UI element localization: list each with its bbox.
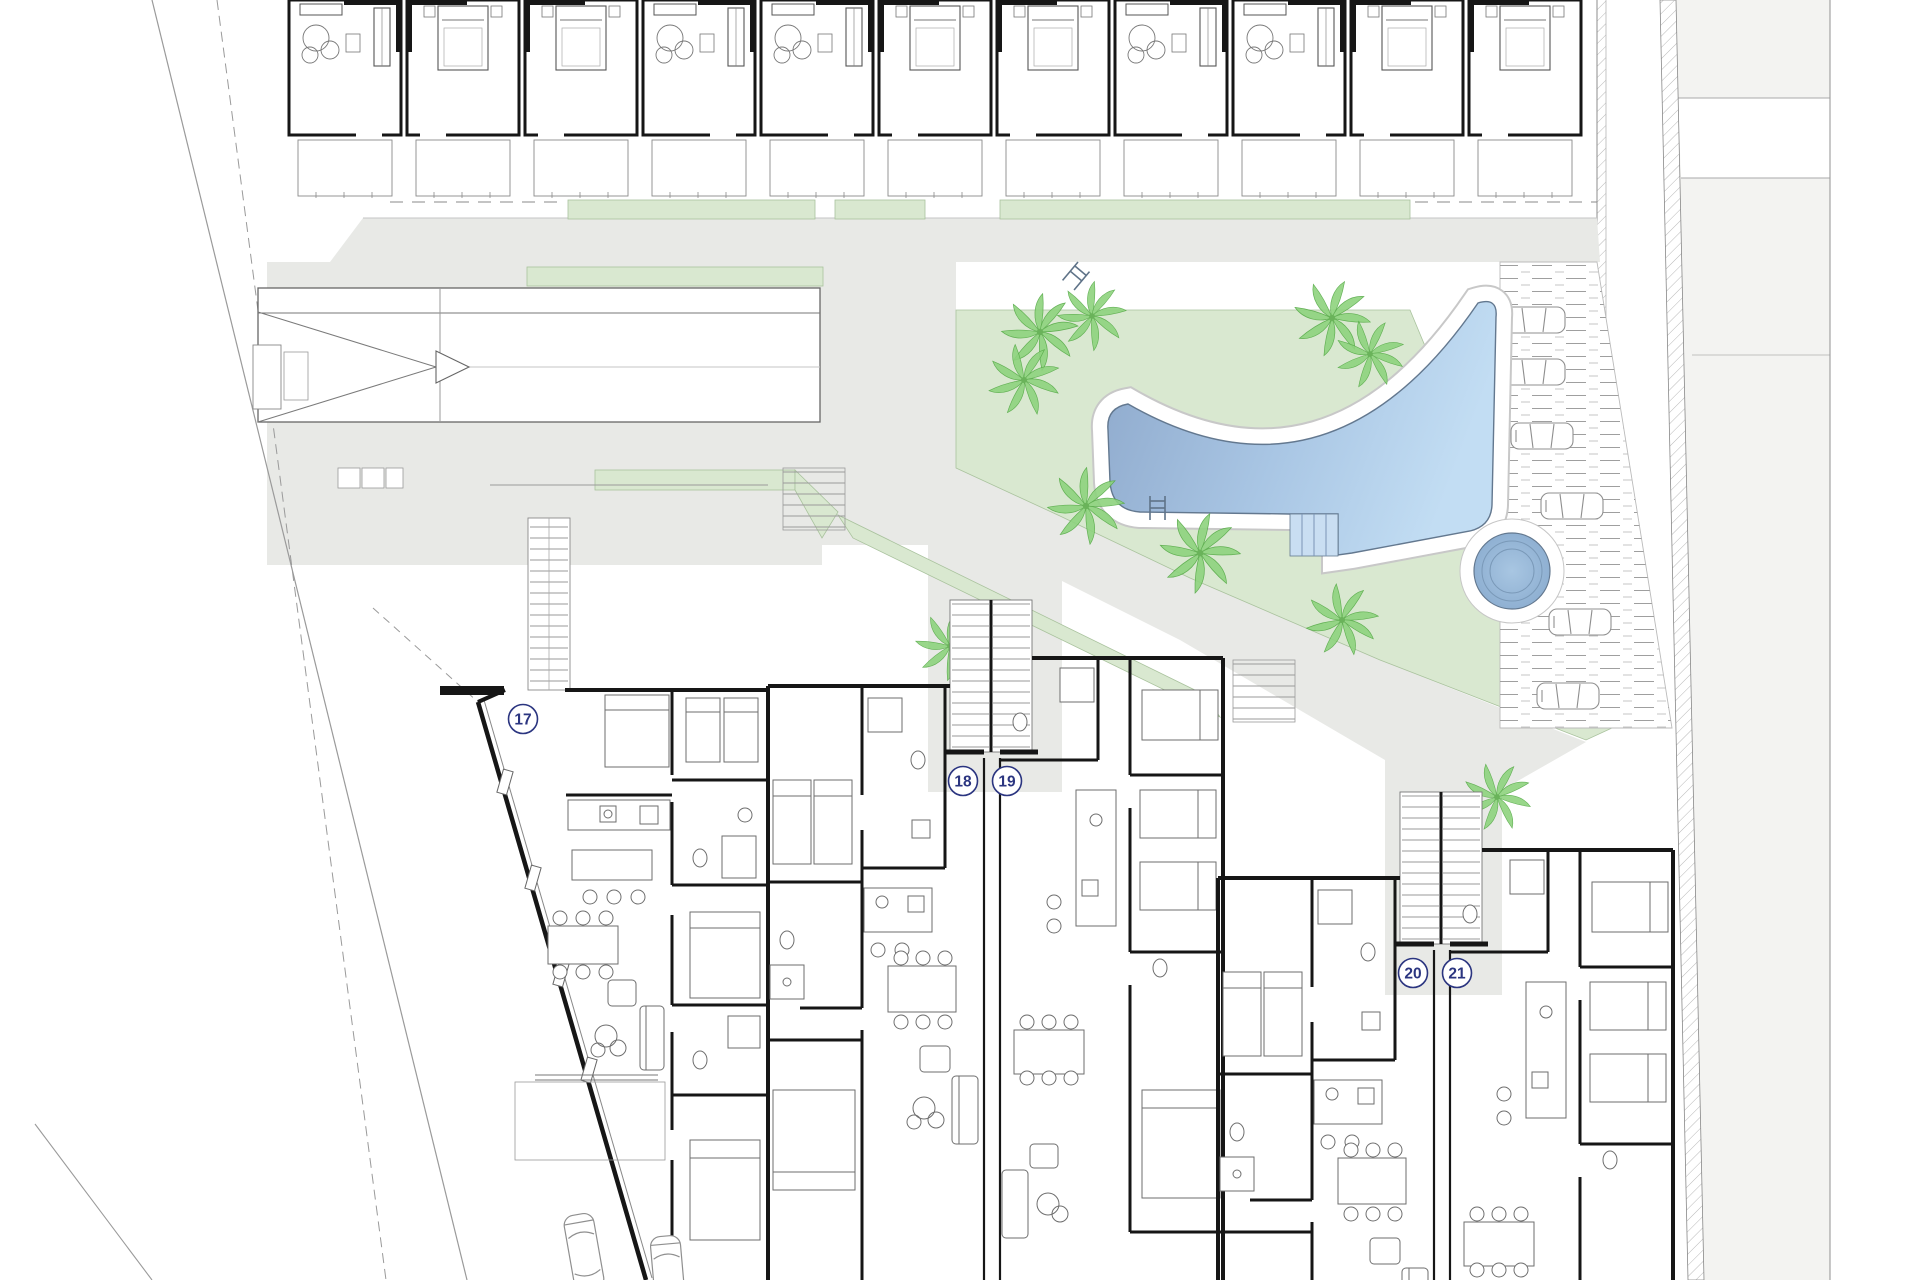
road-crossing-band — [1678, 98, 1830, 178]
unit-label-17: 17 — [514, 712, 531, 729]
pool-steps — [1290, 514, 1338, 556]
unit-label-18: 18 — [954, 774, 972, 791]
site-plan-page: 17 18 19 20 21 — [0, 0, 1920, 1280]
pedestrian-path — [330, 218, 1600, 262]
unit-label-21: 21 — [1448, 966, 1466, 983]
access-ramp — [253, 288, 820, 422]
unit-label-20: 20 — [1404, 966, 1421, 983]
site-plan: 17 18 19 20 21 — [0, 0, 1920, 1280]
spa-circle-icon — [1474, 533, 1550, 609]
unit-label-19: 19 — [998, 774, 1016, 791]
